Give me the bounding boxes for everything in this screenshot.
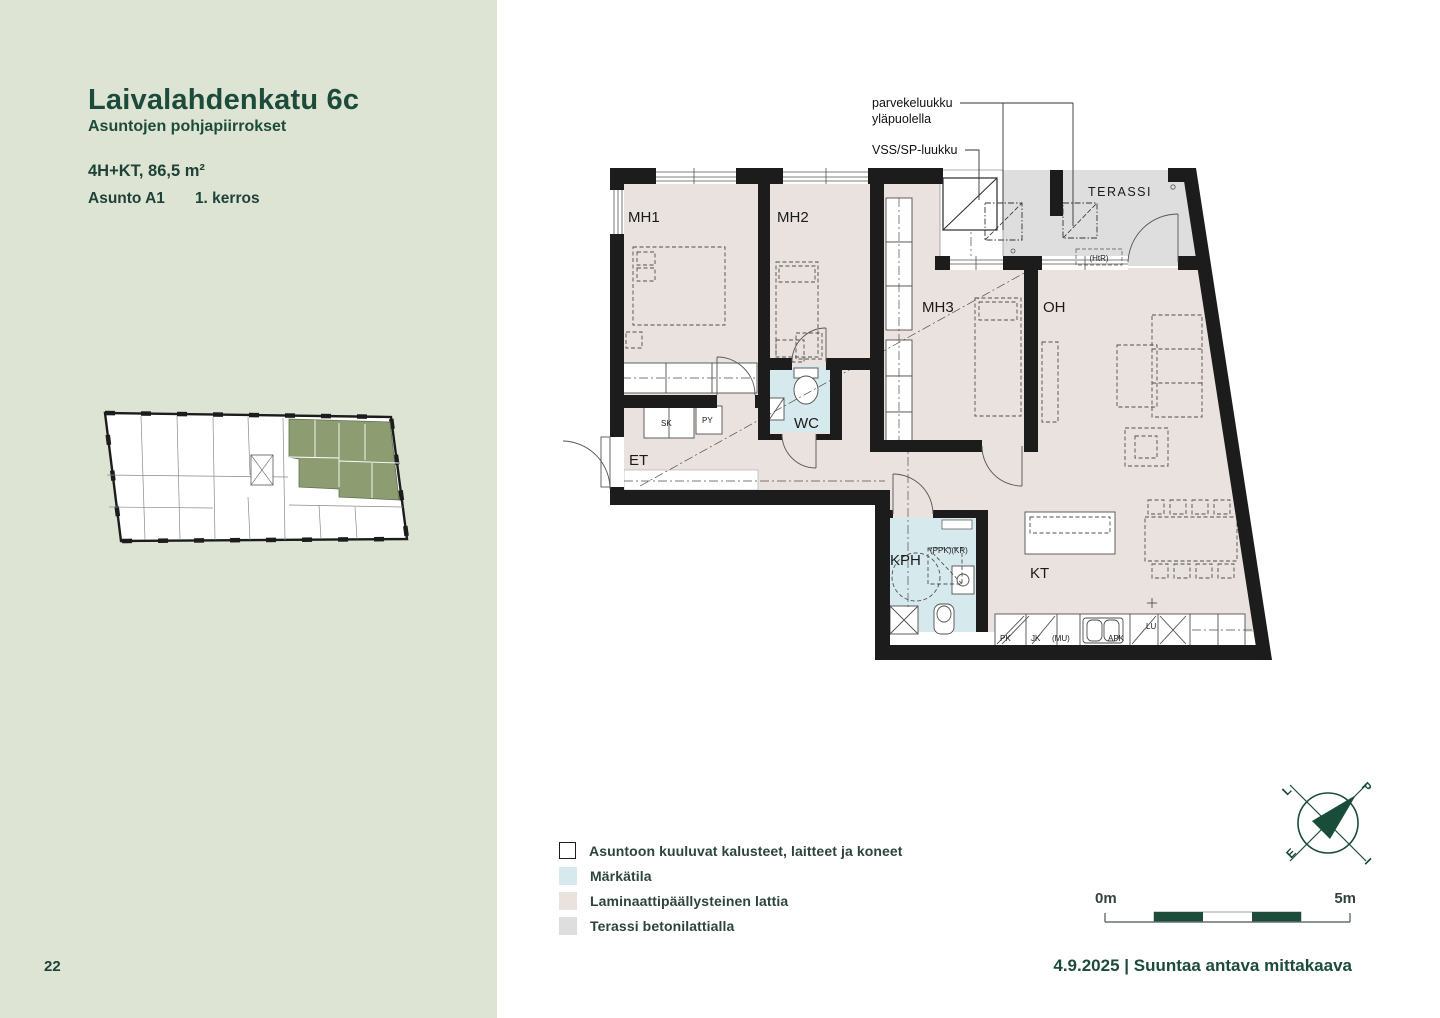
label-lu: LU (1146, 622, 1156, 631)
scale-bar: 0m 5m (1093, 888, 1358, 933)
mh3-window (950, 256, 1003, 270)
compass-north: P (1359, 779, 1375, 795)
floor-label: 1. kerros (195, 190, 260, 207)
page-title: Laivalahdenkatu 6c (88, 84, 359, 117)
legend-swatch-wet (559, 867, 577, 885)
legend-item-laminate: Laminaattipäällysteinen lattia (559, 891, 903, 910)
room-label-terassi: TERASSI (1088, 185, 1152, 199)
balcony-hatch-note-line2: yläpuolella (872, 112, 931, 126)
page-subtitle: Asuntojen pohjapiirrokset (88, 118, 286, 136)
room-label-mh3: MH3 (922, 299, 954, 316)
label-mu: (MU) (1052, 634, 1070, 643)
legend: Asuntoon kuuluvat kalusteet, laitteet ja… (559, 841, 903, 941)
apartment-type: 4H+KT, 86,5 m² (88, 162, 205, 181)
legend-label: Märkätila (590, 868, 652, 884)
label-htr: (HtR) (1089, 254, 1108, 263)
legend-swatch-laminate (559, 892, 577, 910)
room-label-oh: OH (1043, 299, 1066, 316)
compass-rose: L P E I (1278, 773, 1378, 873)
compass-east: I (1362, 855, 1374, 867)
kitchen-island (1025, 512, 1115, 554)
scale-end-label: 5m (1334, 890, 1356, 907)
apartment-id-row: Asunto A11. kerros (88, 190, 260, 208)
sidebar: Laivalahdenkatu 6c Asuntojen pohjapiirro… (0, 0, 497, 1018)
compass-west: L (1279, 783, 1294, 798)
label-py: PY (702, 416, 713, 425)
legend-label: Asuntoon kuuluvat kalusteet, laitteet ja… (589, 843, 903, 859)
mh1-window (656, 168, 736, 184)
label-ppk-kr: (PPK)(KR) (930, 546, 968, 555)
legend-item-terrace: Terassi betonilattialla (559, 916, 903, 935)
footer-date-scale-note: 4.9.2025 | Suuntaa antava mittakaava (1053, 956, 1352, 976)
room-label-wc: WC (794, 415, 819, 432)
oh-window (1042, 256, 1128, 270)
balcony-hatch-note-line1: parvekeluukku (872, 96, 953, 110)
room-label-kph: KPH (890, 552, 921, 569)
label-rk: RK (948, 510, 960, 519)
page-number: 22 (44, 958, 61, 975)
room-label-et: ET (629, 452, 648, 469)
mh1-side-window (610, 190, 624, 234)
building-overview-plan (93, 397, 425, 547)
vss-hatch-note: VSS/SP-luukku (872, 143, 958, 157)
legend-swatch-terrace (559, 917, 577, 935)
label-pk: PK (1000, 634, 1011, 643)
legend-label: Terassi betonilattialla (590, 918, 734, 934)
entrance-door-leaf (601, 437, 610, 487)
label-apk: APK (1108, 634, 1125, 643)
mh2-window (783, 168, 868, 184)
label-jk: JK (1031, 634, 1041, 643)
room-label-kt: KT (1030, 565, 1049, 582)
room-label-mh1: MH1 (628, 209, 660, 226)
compass-south: E (1283, 846, 1299, 862)
room-label-mh2: MH2 (777, 209, 809, 226)
scale-start-label: 0m (1095, 890, 1117, 907)
floor-fills (624, 170, 1258, 632)
legend-swatch-outline (559, 842, 576, 859)
legend-item-wet-room: Märkätila (559, 866, 903, 885)
legend-label: Laminaattipäällysteinen lattia (590, 893, 788, 909)
apartment-id: Asunto A1 (88, 190, 165, 207)
label-sk: SK (661, 419, 672, 428)
floor-plan: parvekeluukku yläpuolella VSS/SP-luukku … (555, 75, 1305, 690)
legend-item-fixtures: Asuntoon kuuluvat kalusteet, laitteet ja… (559, 841, 903, 860)
